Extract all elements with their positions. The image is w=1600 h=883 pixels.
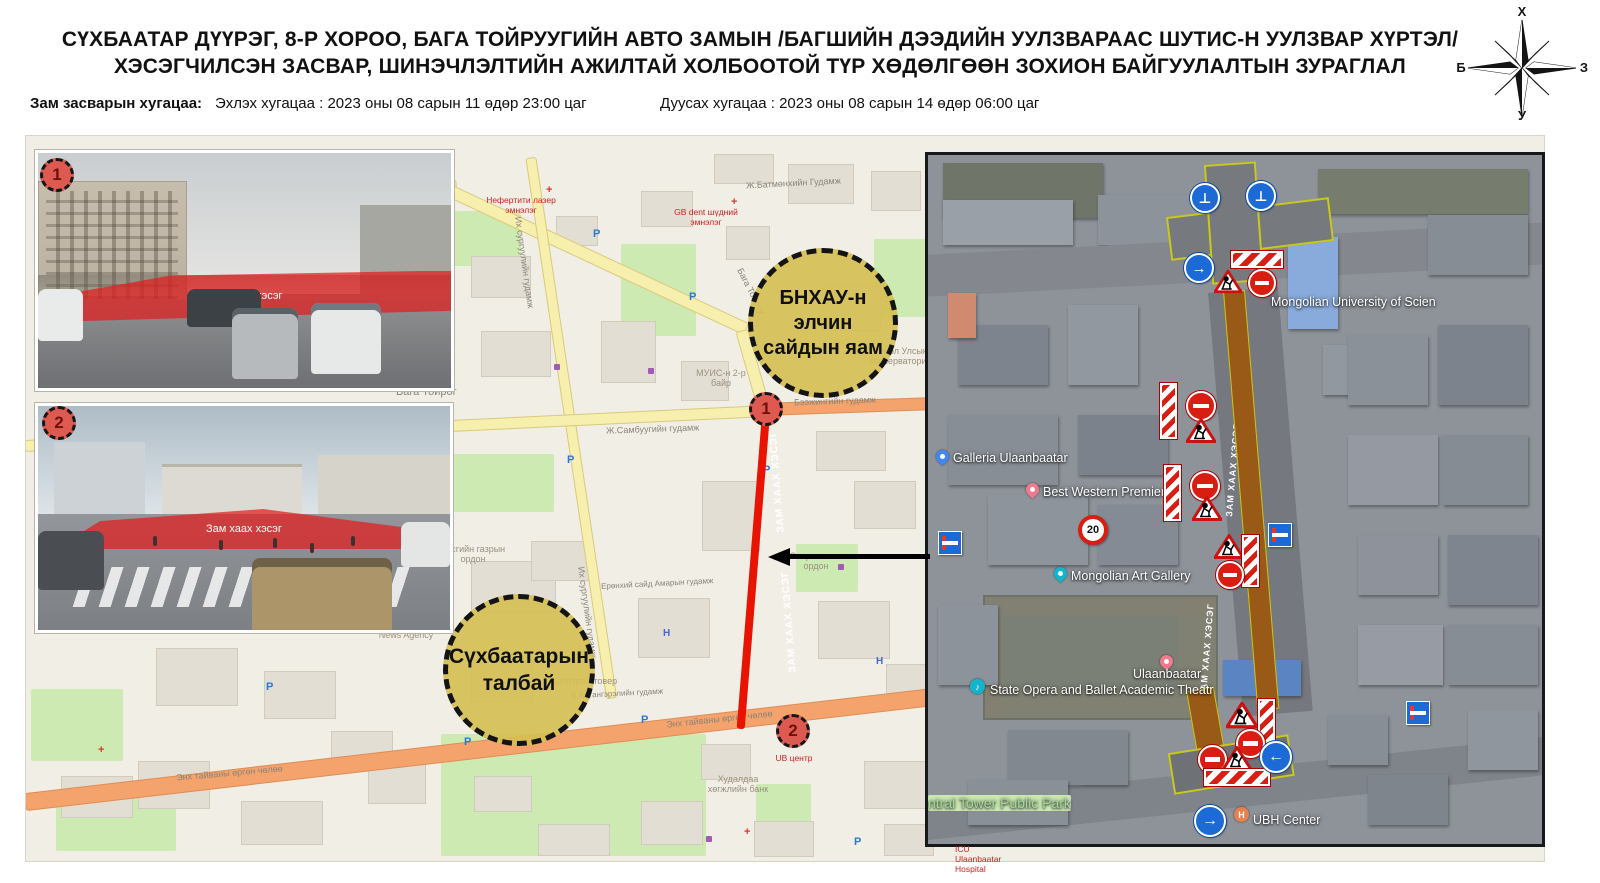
sat-building (1068, 305, 1138, 385)
car (38, 289, 83, 341)
traffic-plan-poster: СҮХБААТАР ДҮҮРЭГ, 8-Р ХОРОО, БАГА ТОЙРУУ… (0, 0, 1600, 883)
poi-label: Худалдаа хөгжлийн банк (703, 774, 773, 795)
hospital-cross-icon: + (98, 744, 104, 756)
sat-label-opera: State Opera and Ballet Academic Theatr (990, 683, 1214, 697)
car (38, 531, 104, 589)
no-entry-sign (1216, 561, 1244, 589)
poi-label-icu-hospital: ICU Ulaanbaatar Hospital (955, 845, 1015, 874)
roadwork-sign (1222, 745, 1252, 772)
map-building (754, 821, 814, 857)
dead-end-sign (1406, 701, 1430, 725)
roadwork-sign (1214, 269, 1242, 294)
map-building (818, 601, 890, 659)
speed-limit-sign: 20 (1078, 515, 1108, 545)
map-building (368, 764, 426, 804)
photo-building (318, 455, 450, 518)
map-building (854, 481, 916, 529)
map-building (816, 431, 886, 471)
map-marker-1: 1 (749, 392, 783, 426)
map-marker-2: 2 (776, 714, 810, 748)
hotel-icon: Н (876, 656, 883, 667)
turn-left-sign: ← (1260, 741, 1292, 773)
sat-building (1438, 325, 1528, 405)
satellite-map: ЗАМ ХААХ ХЭСЭГ ЗАМ ХААХ ХЭСЭГ ⊥ ⊥ → 20 ←… (925, 152, 1545, 847)
map-building (474, 776, 532, 812)
sat-trees (1318, 169, 1528, 214)
mandatory-direction-sign: ⊥ (1190, 183, 1220, 213)
street-label: Ж.Самбуугийн гудамж (606, 422, 700, 435)
sat-building (1348, 435, 1438, 505)
turn-right-sign: → (1194, 805, 1226, 837)
connector-arrow-head-icon (768, 548, 790, 566)
sat-building (1428, 215, 1528, 275)
callout-sukhbaatar-square: Сүхбаатарын талбай (443, 594, 595, 746)
shop-icon (706, 836, 712, 842)
parking-icon: P (567, 454, 574, 466)
sat-building (943, 200, 1073, 245)
sat-building (1468, 710, 1538, 770)
no-entry-sign (1248, 269, 1276, 297)
sat-building (1348, 335, 1428, 405)
park-area (449, 454, 554, 512)
street-photo-1: Зам хаах хэсэг (35, 150, 454, 391)
sat-label-park: ntral Tower Public Park (928, 795, 1071, 811)
map-building (538, 824, 610, 856)
sat-building (1328, 715, 1388, 765)
turn-right-sign: → (1184, 253, 1214, 283)
map-building (241, 801, 323, 845)
sat-label-ulaanbaatar: Ulaanbaatar (1133, 667, 1201, 681)
photo-building (54, 442, 145, 514)
parking-icon: P (641, 714, 648, 726)
closure-route-label: ЗАМ ХААХ ХЭСЭГ (768, 430, 787, 533)
park-area (31, 689, 123, 761)
pedestrian (310, 543, 314, 553)
sat-building (938, 605, 998, 685)
pedestrian (153, 536, 157, 546)
photo-building (162, 464, 302, 518)
map-building (481, 331, 551, 377)
roadwork-sign (1226, 701, 1258, 729)
map-building (638, 598, 710, 658)
pedestrian (273, 538, 277, 548)
duration-label: Зам засварын хугацаа: (30, 95, 202, 112)
mandatory-direction-sign: ⊥ (1246, 181, 1276, 211)
poi-label: МУИС-н 2-р байр (686, 368, 756, 389)
closure-overlay-label: Зам хаах хэсэг (206, 523, 282, 535)
map-building (871, 171, 921, 211)
sat-building-salmon (948, 293, 976, 338)
parking-icon: P (266, 681, 273, 693)
map-building (156, 648, 238, 706)
hospital-cross-icon: + (731, 196, 737, 208)
shop-icon (648, 368, 654, 374)
compass-west-label: Б (1456, 60, 1465, 75)
map-pin-opera-icon: ♪ (970, 679, 985, 694)
compass-north-label: Х (1518, 6, 1527, 19)
closure-route-line (737, 414, 770, 730)
map-building (726, 226, 770, 260)
hospital-cross-icon: + (546, 184, 552, 196)
end-time: Дуусах хугацаа : 2023 оны 08 сарын 14 өд… (660, 95, 1039, 112)
dead-end-sign (938, 531, 962, 555)
sat-building (988, 495, 1088, 565)
roadwork-sign (1186, 417, 1216, 444)
parking-icon: P (854, 836, 861, 848)
shop-icon (838, 564, 844, 570)
sat-building (1358, 535, 1438, 595)
sat-building (1358, 625, 1443, 685)
car (401, 522, 450, 567)
sat-building (1448, 625, 1538, 685)
sat-building (1448, 535, 1538, 605)
pedestrian (351, 536, 355, 546)
dead-end-sign (1268, 523, 1292, 547)
hospital-cross-icon: + (744, 826, 750, 838)
poi-label-clinic: Нефертити лазер эмнэлэг (486, 196, 556, 216)
poi-label-clinic: GB dent шүдний эмнэлэг (671, 208, 741, 228)
sat-label-art-gallery: Mongolian Art Gallery (1071, 569, 1191, 583)
page-title-line2: ХЭСЭГЧИЛСЭН ЗАСВАР, ШИНЭЧЛЭЛТИЙН АЖИЛТАЙ… (40, 55, 1480, 79)
roadwork-sign (1214, 533, 1244, 560)
shop-icon (554, 364, 560, 370)
parking-icon: P (593, 228, 600, 240)
barrier-board (1160, 383, 1177, 439)
photo-badge-1: 1 (40, 158, 74, 192)
sat-building (1368, 775, 1448, 825)
sat-label-ubh: UBH Center (1253, 813, 1320, 827)
sat-label-galleria: Galleria Ulaanbaatar (953, 451, 1068, 465)
street-label: Ерөнхий сайд Амарын гудамж (601, 576, 714, 591)
photo-badge-2: 2 (42, 406, 76, 440)
map-pin-ubh-icon: H (1234, 807, 1249, 822)
sat-building (1443, 435, 1528, 505)
compass-east-label: З (1580, 60, 1588, 75)
compass-south-label: У (1518, 108, 1527, 121)
map-building (641, 801, 703, 845)
sat-building (1008, 730, 1128, 785)
callout-chinese-embassy: БНХАУ-н элчин сайдын яам (748, 248, 898, 398)
sat-label-university: Mongolian University of Scien (1271, 295, 1436, 309)
compass-rose-icon: Х З У Б (1455, 6, 1590, 121)
connector-arrow-shaft (788, 554, 930, 559)
street-photo-2: Зам хаах хэсэг (35, 403, 453, 633)
sat-park-garden (983, 595, 1218, 720)
map-building (264, 671, 336, 719)
car (252, 558, 392, 633)
sat-building-blue-glass (1288, 237, 1338, 329)
roadwork-sign (1192, 495, 1222, 522)
sat-building (948, 415, 1058, 485)
page-title-line1: СҮХБААТАР ДҮҮРЭГ, 8-Р ХОРОО, БАГА ТОЙРУУ… (40, 28, 1480, 52)
sat-building (1078, 415, 1168, 475)
barrier-board (1242, 535, 1259, 587)
car (311, 303, 381, 374)
hotel-icon: Н (663, 628, 670, 639)
barrier-board (1164, 465, 1181, 521)
parking-icon: P (689, 291, 696, 303)
barrier-board (1231, 251, 1283, 268)
barrier-board (1204, 769, 1270, 786)
parking-icon: P (464, 736, 471, 748)
pedestrian (219, 540, 223, 550)
poi-label: UB центр (759, 754, 829, 764)
map-pin-art-gallery (1051, 564, 1069, 582)
car (232, 308, 298, 379)
start-time: Эхлэх хугацаа : 2023 оны 08 сарын 11 өдө… (215, 95, 587, 112)
sat-label-best-western: Best Western Premier (1043, 485, 1165, 499)
map-building (864, 761, 926, 809)
